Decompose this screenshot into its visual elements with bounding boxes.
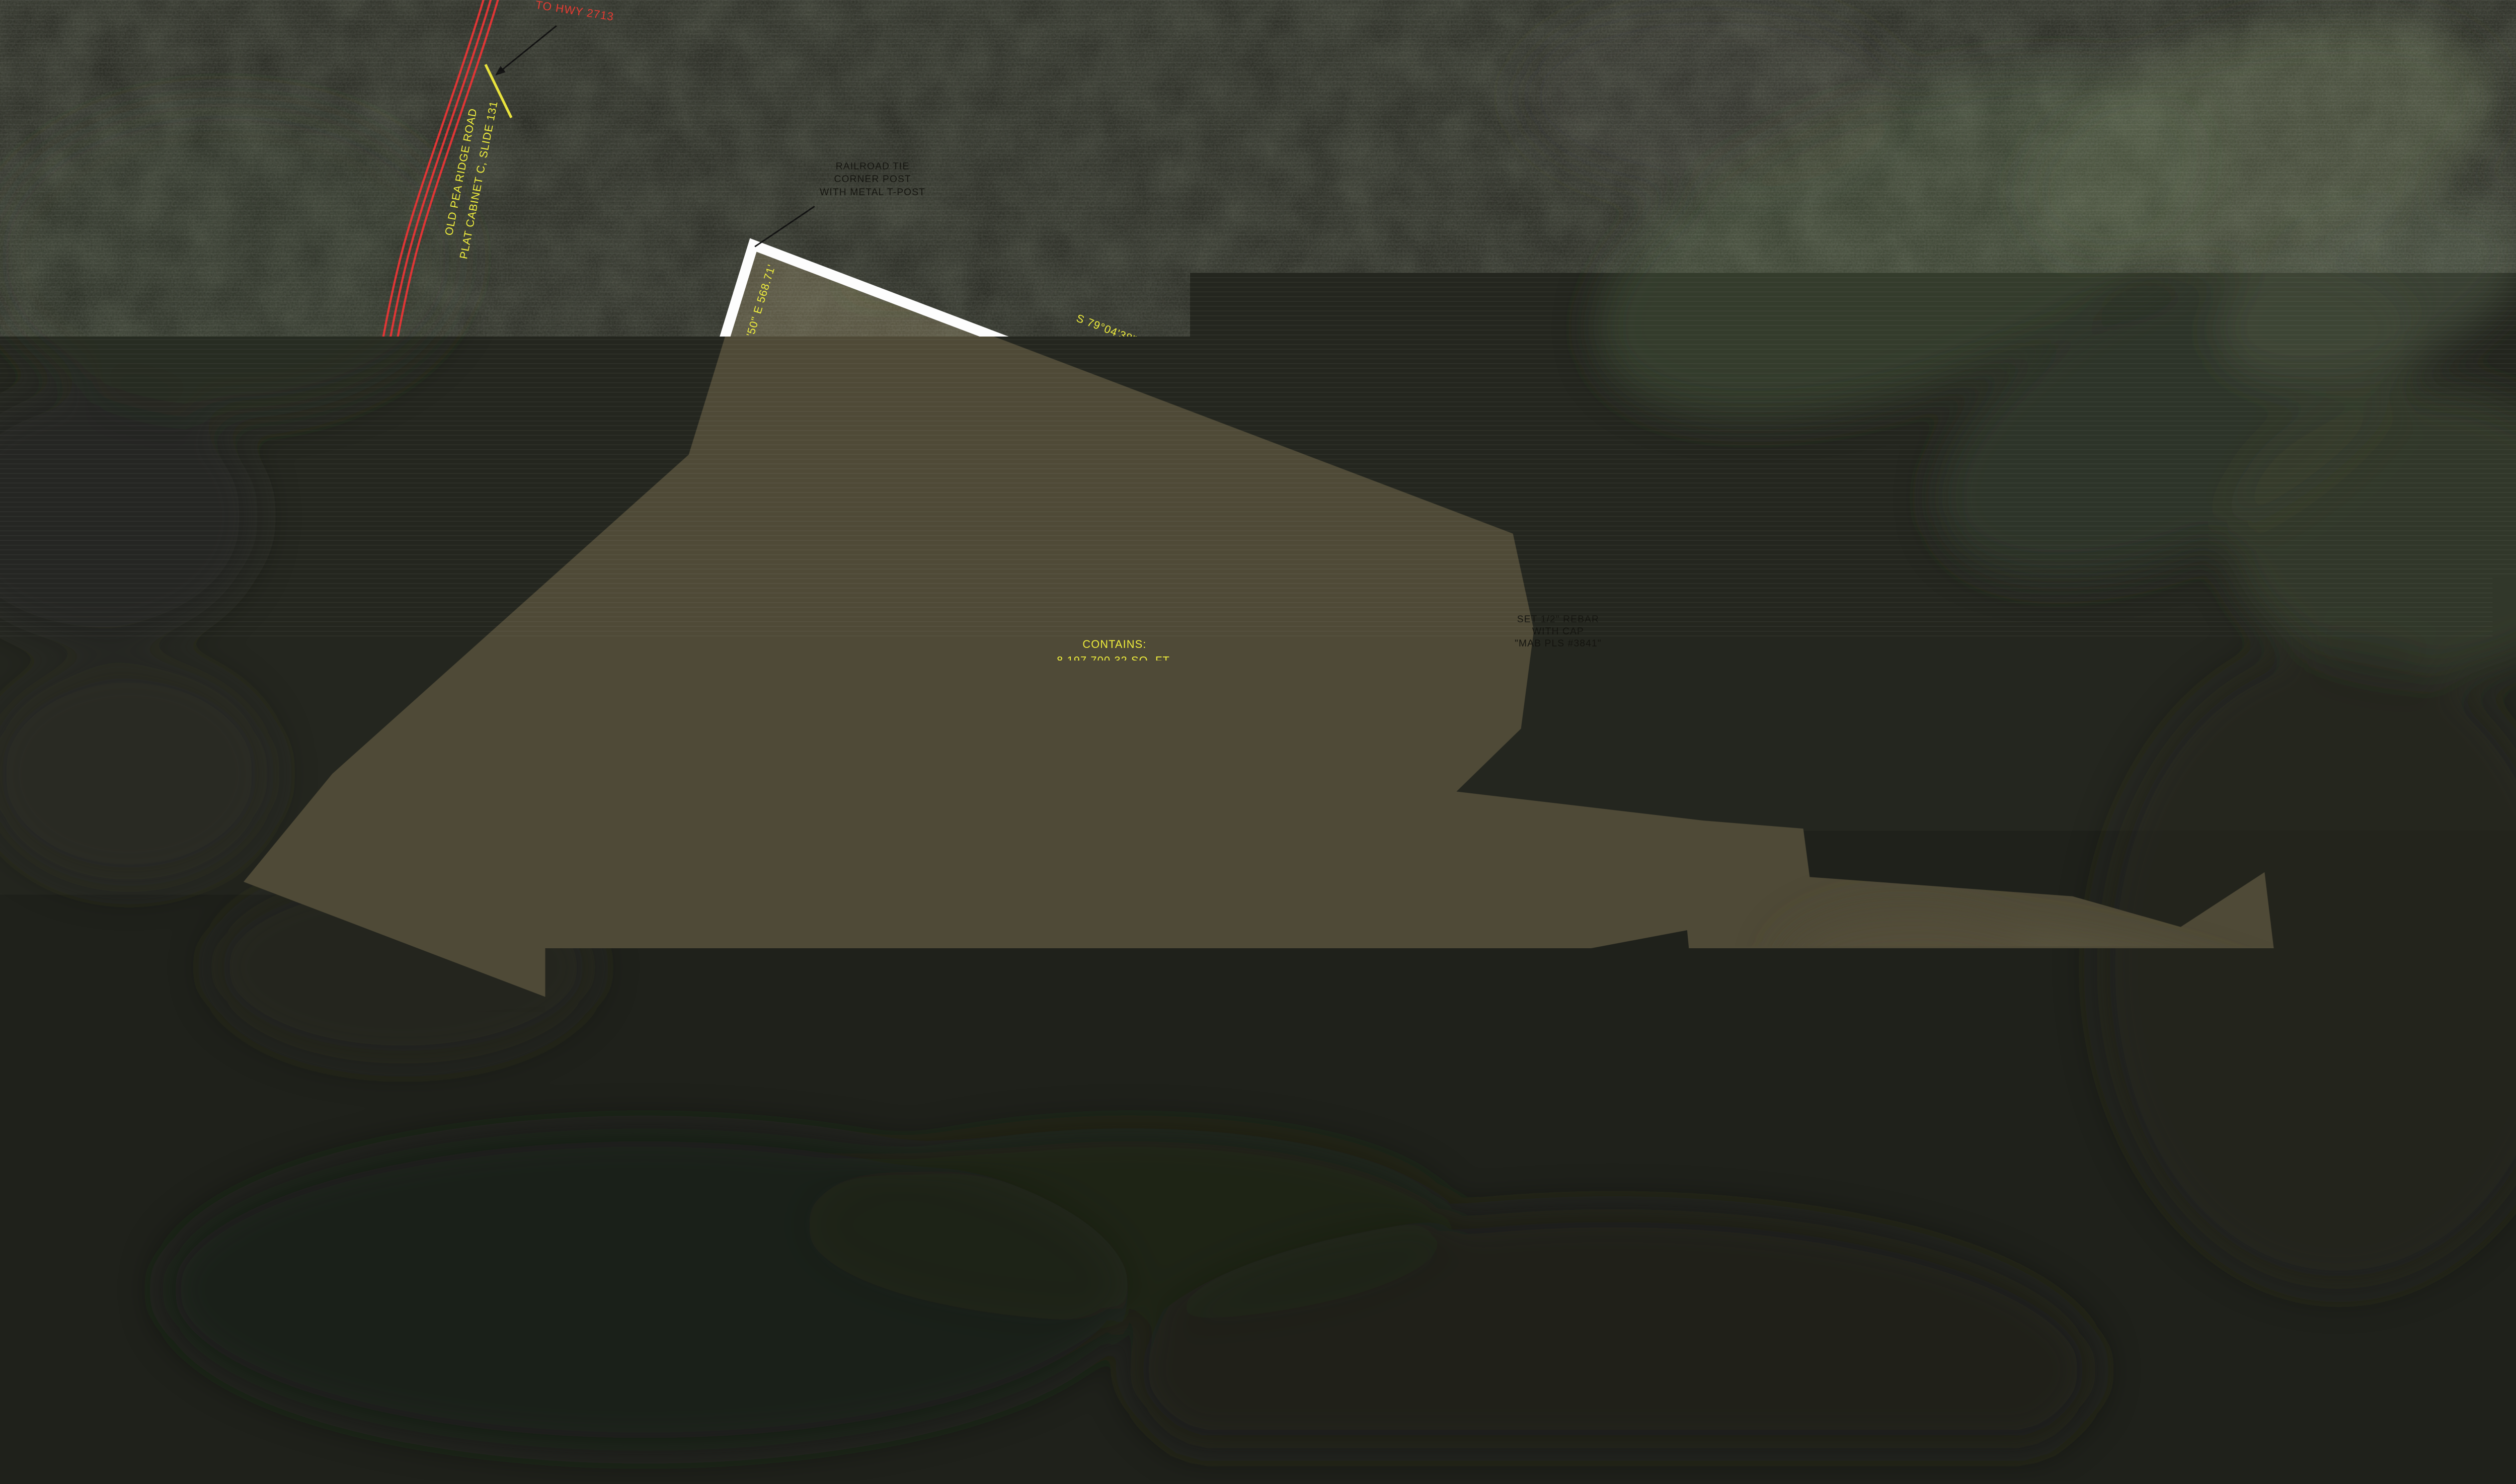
rw-tick bbox=[0, 1103, 1, 1108]
station-tick bbox=[1502, 1008, 1502, 1016]
station-tick bbox=[145, 1077, 146, 1084]
rw-tick bbox=[551, 1050, 552, 1055]
monument-note: WITH T-POST bbox=[1864, 851, 1933, 862]
road-tie-note: APPROXIMATELY 1.69 bbox=[479, 678, 604, 691]
rw-tick bbox=[452, 1058, 453, 1063]
monument-note: WITH T-POST bbox=[2082, 877, 2150, 887]
parcel-area-acres: 188.193 ACRES bbox=[1071, 670, 1158, 683]
station-tick bbox=[1025, 1012, 1025, 1020]
station-tick bbox=[72, 1084, 73, 1092]
rw-tick bbox=[709, 1039, 709, 1044]
rw-tick bbox=[472, 1056, 473, 1061]
coordinate-east: E: 4,648,560.49 bbox=[123, 969, 200, 979]
station-label: 5779+00 bbox=[358, 1021, 366, 1052]
station-tick bbox=[1648, 1020, 1649, 1027]
rw-tick bbox=[216, 1080, 216, 1085]
parcel-contains-title: CONTAINS: bbox=[1082, 638, 1146, 650]
creek-name: CREEK bbox=[1866, 887, 1878, 929]
rw-tick bbox=[334, 1068, 335, 1074]
monument-note: CORNER POST bbox=[834, 174, 911, 185]
rw-tick bbox=[196, 1082, 197, 1087]
station-label: 5791+00 bbox=[798, 988, 807, 1019]
monument-note: SET 1/2" REBAR bbox=[1554, 516, 1636, 526]
survey-plat-map: 5769+005770+005771+005772+005773+005774+… bbox=[0, 0, 2516, 1481]
line-table-tag: L10 bbox=[1487, 957, 1507, 970]
station-label: 5777+00 bbox=[285, 1028, 294, 1059]
monument-note: FOUND STONE MONUMENT bbox=[1497, 753, 1638, 764]
station-tick bbox=[731, 1026, 732, 1034]
rw-tick bbox=[98, 1093, 99, 1098]
station-label: 5799+00 bbox=[1092, 975, 1101, 1007]
adjoiner-owner-collins: HELEN M. COLLINS ET AL bbox=[324, 965, 499, 980]
rw-tick bbox=[295, 1073, 295, 1078]
monument-note: "MAB PLS #3841" bbox=[1295, 332, 1382, 343]
line-table-tag: L12 bbox=[1137, 996, 1157, 1009]
station-label: 5774+00 bbox=[175, 1039, 184, 1070]
station-tick bbox=[548, 1039, 548, 1047]
monument-note: SET 1/2" REBAR bbox=[1544, 558, 1626, 568]
monument-note: WITH T-POST bbox=[1534, 766, 1602, 776]
rw-tick bbox=[413, 1061, 413, 1066]
rw-tick bbox=[768, 1035, 768, 1040]
parcel-area-sqft: 8,197,700.32 SQ. FT. bbox=[1057, 654, 1172, 667]
station-label: 5787+00 bbox=[652, 998, 660, 1029]
station-tick bbox=[585, 1036, 585, 1044]
station-tick bbox=[1575, 1013, 1576, 1020]
rw-tick bbox=[373, 1065, 374, 1070]
rw-tick bbox=[1597, 1026, 1598, 1031]
monument-note: SET 1/2" REBAR bbox=[1298, 308, 1380, 318]
station-label: 5782+00 bbox=[468, 1011, 477, 1042]
station-tick bbox=[255, 1065, 256, 1073]
station-label: 5778+00 bbox=[321, 1024, 330, 1056]
station-tick bbox=[219, 1069, 220, 1077]
monument-note: FOUND CORNER STONE bbox=[2054, 864, 2178, 875]
station-tick bbox=[402, 1051, 402, 1059]
adjoiner-deed-allen: DEED BOOK 35, PAGE 460 bbox=[392, 429, 546, 441]
adjoiner-parcel-collins: PVA PARCEL #112-31 bbox=[350, 996, 472, 1009]
monument-note: SET 1/2" REBAR bbox=[1517, 614, 1599, 625]
station-label: 5773+00 bbox=[138, 1042, 147, 1074]
rw-tick bbox=[531, 1051, 531, 1056]
station-tick bbox=[1538, 1010, 1539, 1018]
station-tick bbox=[805, 1022, 805, 1030]
creek-name: CAMP bbox=[1872, 963, 1885, 998]
rw-tick bbox=[492, 1055, 492, 1060]
monument-note: "MAB PLS #3841" bbox=[1548, 475, 1635, 486]
monument-note: "MAB PLS #3841" bbox=[303, 730, 390, 741]
rw-tick bbox=[788, 1034, 788, 1039]
station-label: 5776+00 bbox=[248, 1031, 257, 1063]
line-table-tag: L7 bbox=[2210, 881, 2223, 894]
station-label: 5771+00 bbox=[65, 1050, 74, 1082]
monument-note: WITH CAP bbox=[2053, 1086, 2105, 1096]
rw-tick bbox=[1617, 1027, 1618, 1032]
road-tie-note: MILES FROM HWY 2713 bbox=[475, 693, 609, 705]
station-tick bbox=[328, 1058, 329, 1066]
monument-note: WITH CAP bbox=[1569, 528, 1621, 539]
rw-tick bbox=[177, 1084, 177, 1089]
monument-note: WITH CAP bbox=[321, 718, 373, 729]
station-label: 5789+00 bbox=[725, 993, 733, 1024]
rw-tick bbox=[78, 1095, 79, 1100]
rw-tick bbox=[1519, 1020, 1519, 1025]
station-tick bbox=[365, 1055, 365, 1062]
rw-tick bbox=[157, 1086, 158, 1091]
station-tick bbox=[768, 1024, 768, 1032]
monument-note: "MAB PLS #3841" bbox=[1552, 540, 1639, 551]
monument-note: WITH CAP bbox=[1313, 320, 1365, 331]
station-label: 5790+00 bbox=[761, 991, 770, 1022]
imagery-watermark: Google bbox=[362, 528, 400, 539]
monument-note: FOUND STONE MONUMENT bbox=[1787, 750, 1929, 760]
station-tick bbox=[36, 1088, 37, 1096]
rw-tick bbox=[275, 1075, 276, 1080]
station-tick bbox=[438, 1048, 439, 1056]
station-label: 5796+00 bbox=[982, 979, 991, 1011]
parkway-name: WESTERN bbox=[1166, 1030, 1237, 1047]
rw-tick bbox=[511, 1053, 512, 1058]
monument-note: WITH CAP bbox=[1532, 626, 1584, 637]
rw-tick bbox=[59, 1097, 59, 1102]
station-tick bbox=[1061, 1011, 1062, 1018]
rw-tick bbox=[1558, 1023, 1558, 1028]
rw-tick bbox=[847, 1031, 847, 1036]
monument-note: "MAB PLS #3841" bbox=[1542, 582, 1629, 593]
rw-tick bbox=[1657, 1031, 1657, 1036]
station-tick bbox=[292, 1062, 292, 1069]
adjoiner-parcel-allen: PVA PARCEL #113-32 bbox=[409, 443, 530, 455]
road-tie-note: POINT IN C/L OF bbox=[495, 649, 589, 662]
station-tick bbox=[475, 1045, 475, 1053]
station-label: 5797+00 bbox=[1018, 978, 1028, 1010]
monument-note: "MAB PLS #3841" bbox=[1515, 638, 1602, 649]
rw-tick bbox=[19, 1101, 20, 1106]
station-tick bbox=[694, 1029, 695, 1036]
station-label: 5772+00 bbox=[102, 1046, 111, 1078]
station-label: 5780+00 bbox=[395, 1018, 403, 1049]
rw-tick bbox=[1637, 1029, 1637, 1034]
monument-note: RAILROAD TIE bbox=[836, 161, 910, 172]
station-tick bbox=[182, 1073, 183, 1080]
rw-tick bbox=[867, 1030, 867, 1035]
monument-note: SET 1/2" REBAR bbox=[306, 706, 388, 717]
adjoiner-owner-allen: S. S. ALLEN ESTATE bbox=[401, 410, 538, 426]
rw-tick bbox=[314, 1070, 315, 1076]
rw-tick bbox=[571, 1048, 571, 1053]
monument-note: WITH CAP bbox=[1566, 463, 1618, 474]
rw-tick bbox=[728, 1038, 729, 1043]
rw-tick bbox=[433, 1060, 433, 1065]
monument-note: SET 1/2" REBAR bbox=[1551, 451, 1633, 462]
map-canvas: 5769+005770+005771+005772+005773+005774+… bbox=[0, 0, 2516, 1481]
monument-note: WITH CAP bbox=[135, 933, 187, 943]
station-tick bbox=[511, 1042, 512, 1050]
station-label: 5770+00 bbox=[29, 1054, 38, 1086]
coordinate-north: N: 3,666,756.17 bbox=[123, 957, 200, 967]
rw-tick bbox=[689, 1040, 689, 1045]
station-tick bbox=[914, 1017, 915, 1024]
road-tie-note: OLD PEA RIDGE ROAD bbox=[477, 664, 606, 677]
rw-tick bbox=[137, 1088, 138, 1093]
station-label: 5781+00 bbox=[431, 1015, 440, 1046]
monument-note: SET 1/2" REBAR bbox=[120, 921, 202, 931]
rw-tick bbox=[118, 1091, 118, 1096]
creek-name: NORTH bbox=[1850, 1028, 1862, 1071]
station-label: 5798+00 bbox=[1055, 976, 1064, 1008]
station-tick bbox=[1611, 1016, 1612, 1023]
monument-note: SYCAMORE bbox=[1828, 775, 1888, 786]
rw-tick bbox=[393, 1063, 394, 1068]
rw-tick bbox=[1676, 1034, 1677, 1039]
monument-note: "MAB PLS #3841" bbox=[2035, 1098, 2122, 1108]
station-label: 5775+00 bbox=[211, 1035, 220, 1066]
rw-tick bbox=[1538, 1021, 1539, 1026]
station-label: 5788+00 bbox=[688, 995, 696, 1026]
station-tick bbox=[1465, 1007, 1465, 1015]
rw-pl-note: ~R/W —P/L~ bbox=[483, 1014, 555, 1026]
rw-tick bbox=[354, 1067, 354, 1072]
monument-note: WITH T-POST AT bbox=[1816, 763, 1900, 773]
rw-tick bbox=[748, 1036, 749, 1041]
rw-tick bbox=[630, 1044, 630, 1049]
monument-note: SET 1/2" REBAR bbox=[2038, 1074, 2120, 1084]
monument-note: "MAB PLS #3841" bbox=[118, 945, 205, 955]
monument-note: WITH CAP bbox=[1559, 570, 1611, 581]
rw-tick bbox=[255, 1076, 256, 1081]
station-tick bbox=[109, 1081, 110, 1088]
rw-tick bbox=[590, 1047, 591, 1052]
rw-tick bbox=[39, 1099, 40, 1104]
monument-note: FOUND STONE MONUMENT bbox=[1828, 838, 1969, 849]
rw-tick bbox=[649, 1043, 650, 1048]
rw-tick bbox=[610, 1046, 610, 1051]
station-tick bbox=[621, 1034, 621, 1041]
rw-tick bbox=[1578, 1024, 1578, 1029]
rw-tick bbox=[235, 1078, 236, 1083]
monument-note: WITH METAL T-POST bbox=[820, 187, 925, 198]
adjoiner-deed-collins: DEED BOOK 245, PAGE 594 bbox=[331, 981, 492, 994]
station-tick bbox=[878, 1018, 878, 1026]
